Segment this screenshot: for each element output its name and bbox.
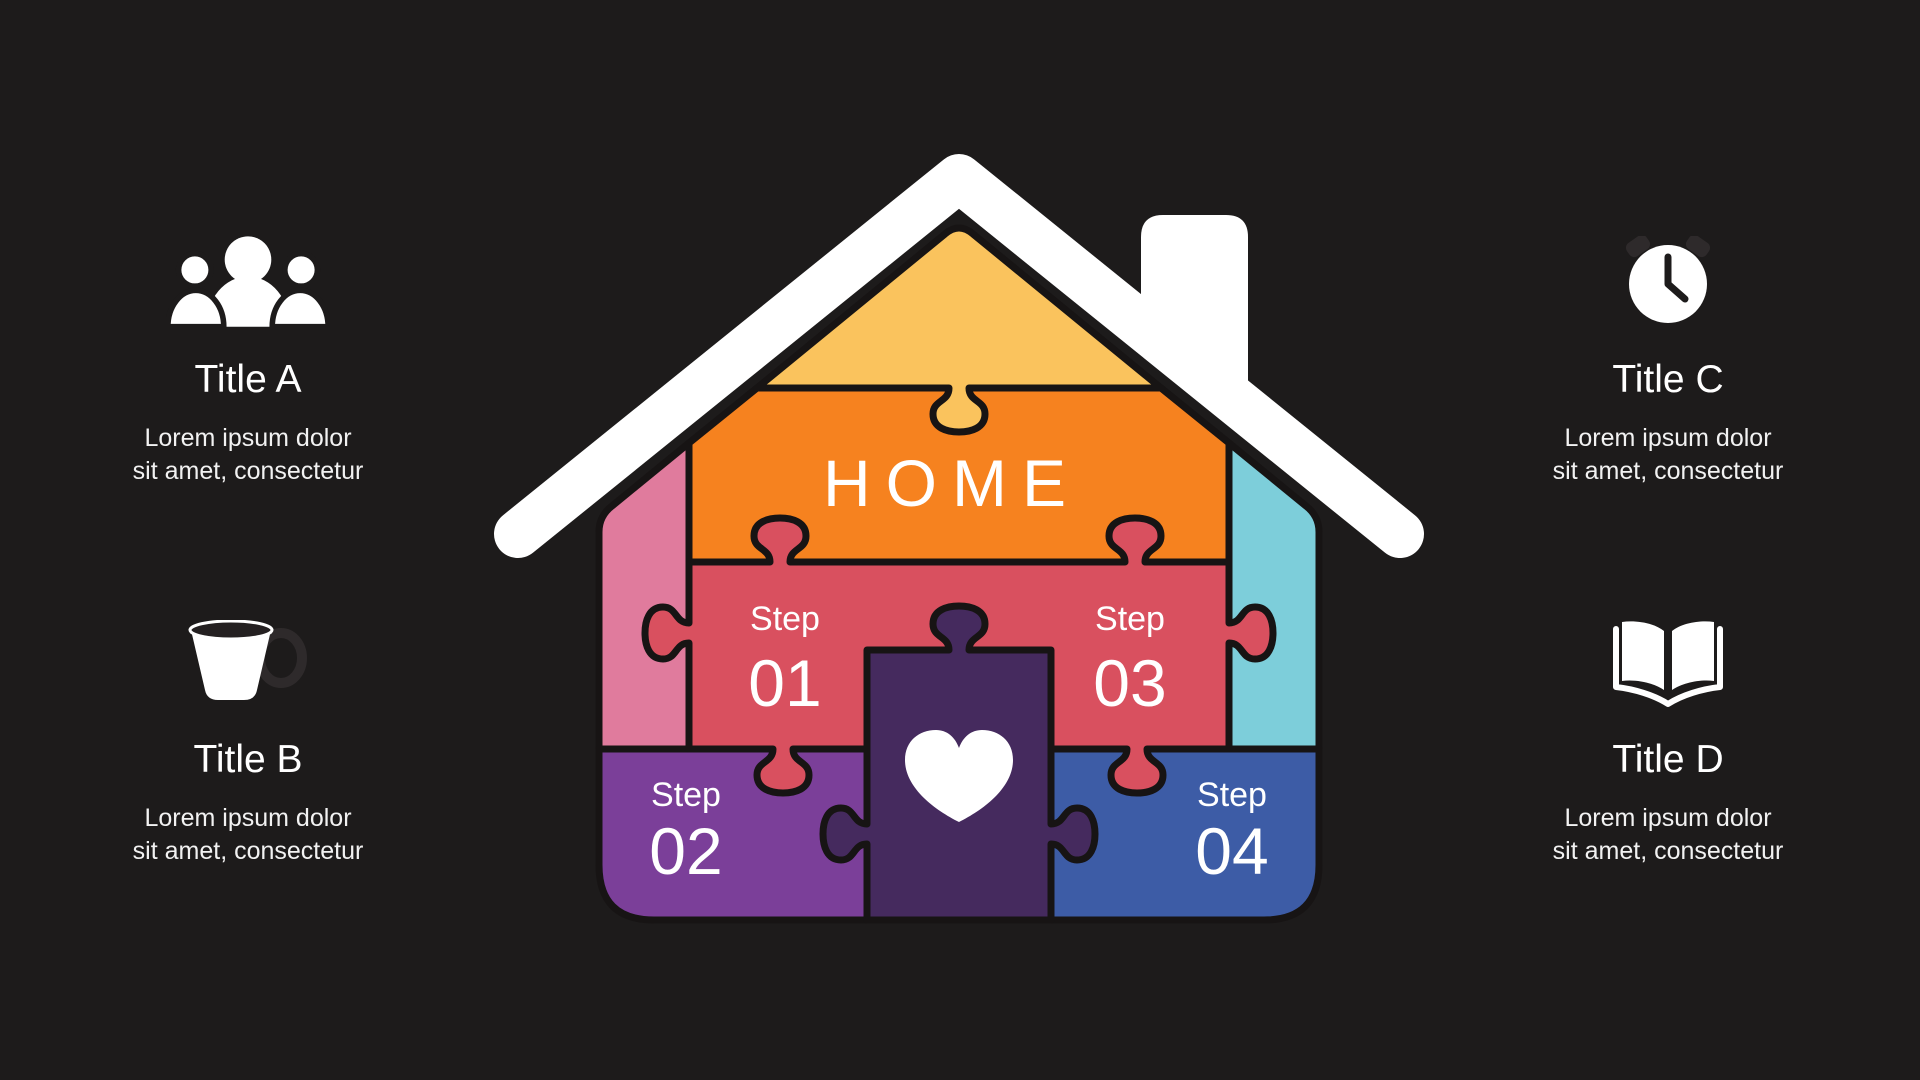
info-body: Lorem ipsum dolor sit amet, consectetur	[1448, 422, 1888, 488]
left-wall-piece	[599, 443, 689, 749]
step-01-label: Step	[750, 600, 820, 638]
book-icon	[1448, 612, 1888, 712]
home-puzzle-infographic: HOME Step 01 Step 03 Step 02 Step 04	[0, 0, 1920, 1080]
info-block-b: Title B Lorem ipsum dolor sit amet, cons…	[28, 612, 468, 868]
info-body-line2: sit amet, consectetur	[1448, 455, 1888, 488]
info-block-a: Title A Lorem ipsum dolor sit amet, cons…	[28, 232, 468, 488]
info-body-line1: Lorem ipsum dolor	[28, 802, 468, 835]
info-body-line1: Lorem ipsum dolor	[1448, 802, 1888, 835]
info-body: Lorem ipsum dolor sit amet, consectetur	[28, 422, 468, 488]
info-body-line2: sit amet, consectetur	[28, 835, 468, 868]
home-title: HOME	[823, 446, 1081, 520]
step-02-number: 02	[649, 814, 722, 888]
cup-icon	[28, 612, 468, 712]
info-body-line2: sit amet, consectetur	[28, 455, 468, 488]
step-03-number: 03	[1093, 646, 1166, 720]
slide-canvas: HOME Step 01 Step 03 Step 02 Step 04 Tit…	[0, 0, 1920, 1080]
step-04-number: 04	[1195, 814, 1268, 888]
info-body: Lorem ipsum dolor sit amet, consectetur	[28, 802, 468, 868]
info-block-d: Title D Lorem ipsum dolor sit amet, cons…	[1448, 612, 1888, 868]
people-icon	[28, 232, 468, 332]
info-title: Title C	[1448, 358, 1888, 402]
info-title: Title D	[1448, 738, 1888, 782]
step-03-label: Step	[1095, 600, 1165, 638]
clock-icon	[1448, 232, 1888, 332]
info-body-line2: sit amet, consectetur	[1448, 835, 1888, 868]
right-wall-piece	[1229, 443, 1319, 749]
info-title: Title B	[28, 738, 468, 782]
info-title: Title A	[28, 358, 468, 402]
info-body-line1: Lorem ipsum dolor	[28, 422, 468, 455]
step-01-number: 01	[748, 646, 821, 720]
info-body: Lorem ipsum dolor sit amet, consectetur	[1448, 802, 1888, 868]
step-02-label: Step	[651, 776, 721, 814]
step-04-label: Step	[1197, 776, 1267, 814]
info-body-line1: Lorem ipsum dolor	[1448, 422, 1888, 455]
info-block-c: Title C Lorem ipsum dolor sit amet, cons…	[1448, 232, 1888, 488]
